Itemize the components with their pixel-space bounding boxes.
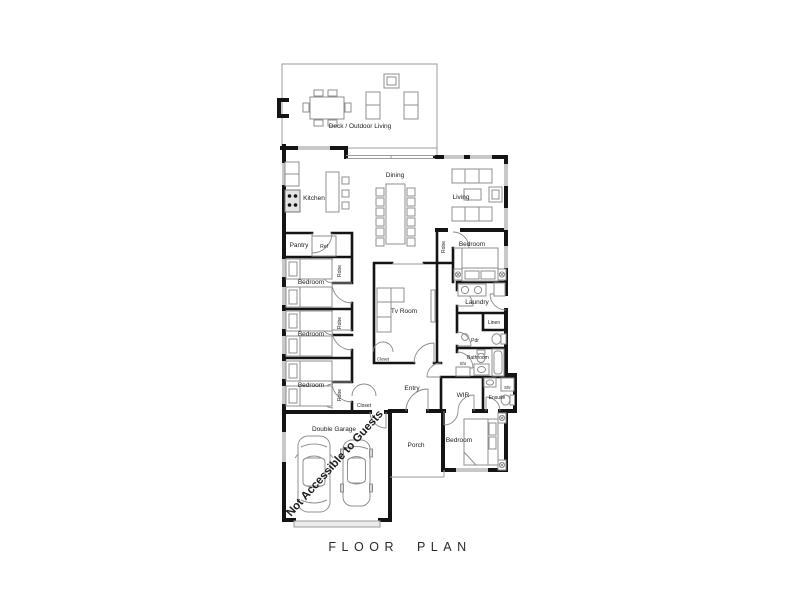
dining-furniture: [376, 184, 415, 246]
burner: [288, 203, 292, 207]
label-robe-3: Robe: [337, 389, 343, 401]
label-living: Living: [453, 194, 470, 201]
outdoor-chair: [314, 90, 323, 96]
label-pantry: Pantry: [290, 242, 310, 249]
deck-step-marker: [277, 98, 289, 118]
label-robe-2: Robe: [337, 317, 343, 329]
label-ensuite: Ensuite: [489, 395, 506, 401]
ensuite-vanity: [484, 378, 496, 387]
label-robe-1: Robe: [337, 265, 343, 277]
label-deck: Deck / Outdoor Living: [329, 123, 392, 130]
burner: [294, 203, 298, 207]
cooktop: [285, 190, 300, 212]
label-wir: WIR: [457, 392, 470, 399]
label-closet-hall: Closet: [357, 403, 372, 409]
label-linen: Linen: [488, 320, 500, 326]
label-porch: Porch: [408, 442, 425, 449]
outdoor-chair: [303, 103, 309, 112]
toilet-tank: [501, 334, 506, 344]
floor-plan-canvas: Deck / Outdoor Living Kitchen Dining Liv…: [0, 0, 800, 600]
outdoor-table: [310, 97, 344, 119]
sofa: [452, 169, 492, 183]
floor-plan-page: Deck / Outdoor Living Kitchen Dining Liv…: [0, 0, 800, 600]
guest-bedroom-furniture: [454, 248, 506, 281]
toilet-tank: [510, 395, 515, 405]
deck-slider-doors: [346, 156, 435, 159]
label-bedroom-guest: Bedroom: [459, 241, 485, 248]
not-accessible-annotation: Not Accessible to Guests: [284, 408, 385, 519]
tv-screen: [431, 290, 435, 322]
garage-door-panel: [294, 521, 380, 527]
outdoor-chair: [314, 120, 323, 126]
sink-unit: [285, 174, 299, 186]
label-tv-room: Tv Room: [391, 308, 417, 315]
laundry-tub: [494, 283, 505, 296]
label-shr-bathroom: Shr: [460, 361, 467, 366]
fridge: [285, 162, 299, 174]
label-laundry: Laundry: [465, 299, 489, 306]
dining-table: [386, 184, 405, 244]
label-bedroom-1: Bedroom: [298, 279, 324, 286]
label-bedroom-master: Bedroom: [446, 437, 472, 444]
label-ref: Ref: [320, 244, 328, 250]
label-bedroom-3: Bedroom: [298, 382, 324, 389]
deck-area: [277, 64, 437, 157]
label-bathroom: Bathroom: [467, 355, 489, 361]
label-entry: Entry: [404, 385, 420, 392]
outdoor-chair: [345, 103, 351, 112]
label-closet-tv: Closet: [377, 357, 390, 362]
island-stools: [342, 177, 349, 209]
sofa-corner: [391, 288, 404, 302]
burner: [288, 194, 292, 198]
label-garage: Double Garage: [312, 426, 356, 433]
porch-edge: [390, 470, 444, 477]
kitchen-island: [326, 172, 339, 212]
label-kitchen: Kitchen: [303, 195, 325, 202]
burner: [294, 194, 298, 198]
label-dining: Dining: [386, 172, 405, 179]
double-bed: [462, 248, 498, 281]
floor-plan-title: FLOOR PLAN: [328, 540, 471, 554]
tv-unit: [489, 187, 502, 202]
label-shr-ensuite: Shr: [504, 385, 511, 390]
shower-base: [456, 367, 470, 376]
outdoor-armchair: [384, 74, 399, 88]
label-robe-guest: Robe: [441, 241, 447, 253]
toilet-bowl: [492, 334, 501, 344]
label-pdr: Pdr: [471, 338, 479, 344]
sofa-l: [377, 288, 391, 332]
label-bedroom-2: Bedroom: [298, 331, 324, 338]
vanity: [474, 364, 489, 375]
sofa: [452, 207, 492, 221]
outdoor-chair: [328, 90, 337, 96]
